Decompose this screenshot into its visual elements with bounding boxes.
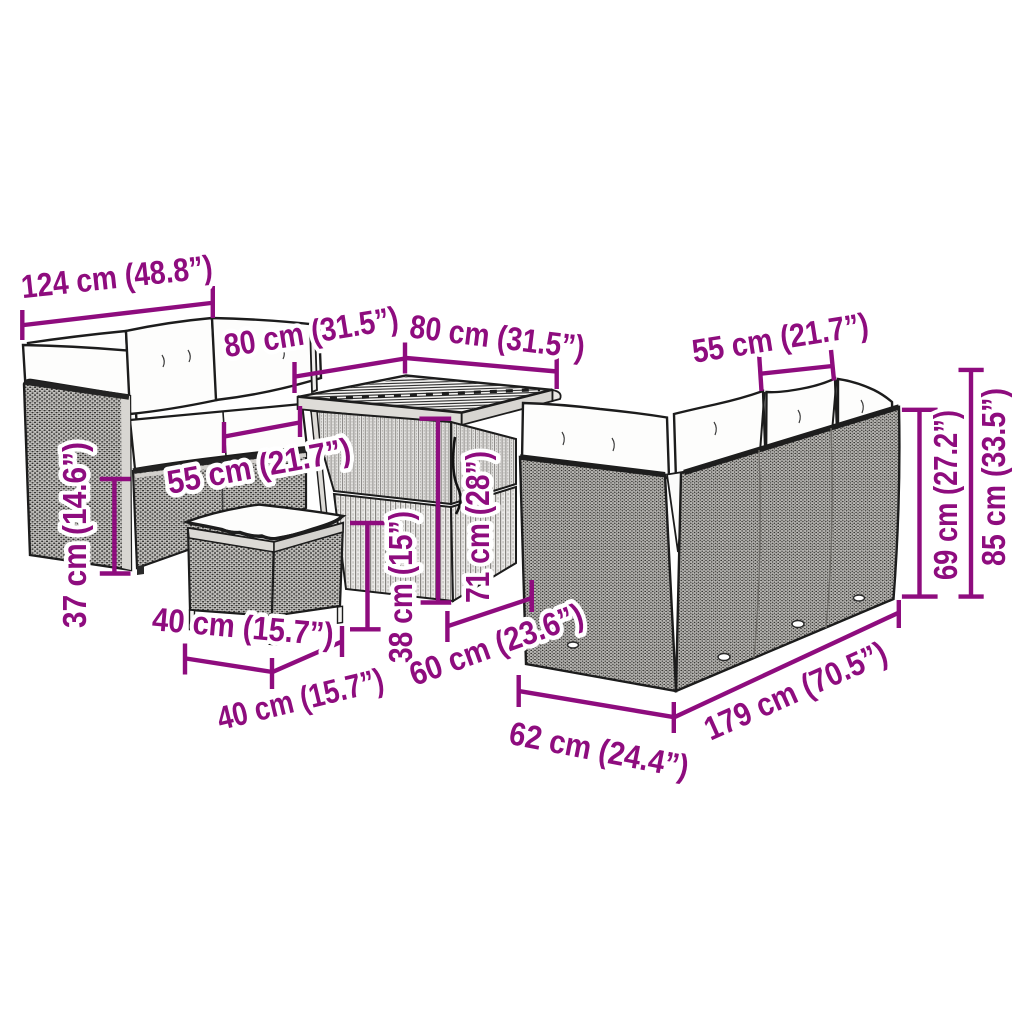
svg-text:38 cm (15”): 38 cm (15”) — [382, 511, 419, 663]
svg-text:85 cm (33.5”): 85 cm (33.5”) — [975, 388, 1012, 566]
svg-text:71 cm (28”): 71 cm (28”) — [459, 451, 496, 603]
svg-text:69 cm (27.2”): 69 cm (27.2”) — [927, 410, 964, 580]
svg-text:37 cm (14.6”): 37 cm (14.6”) — [56, 442, 93, 628]
